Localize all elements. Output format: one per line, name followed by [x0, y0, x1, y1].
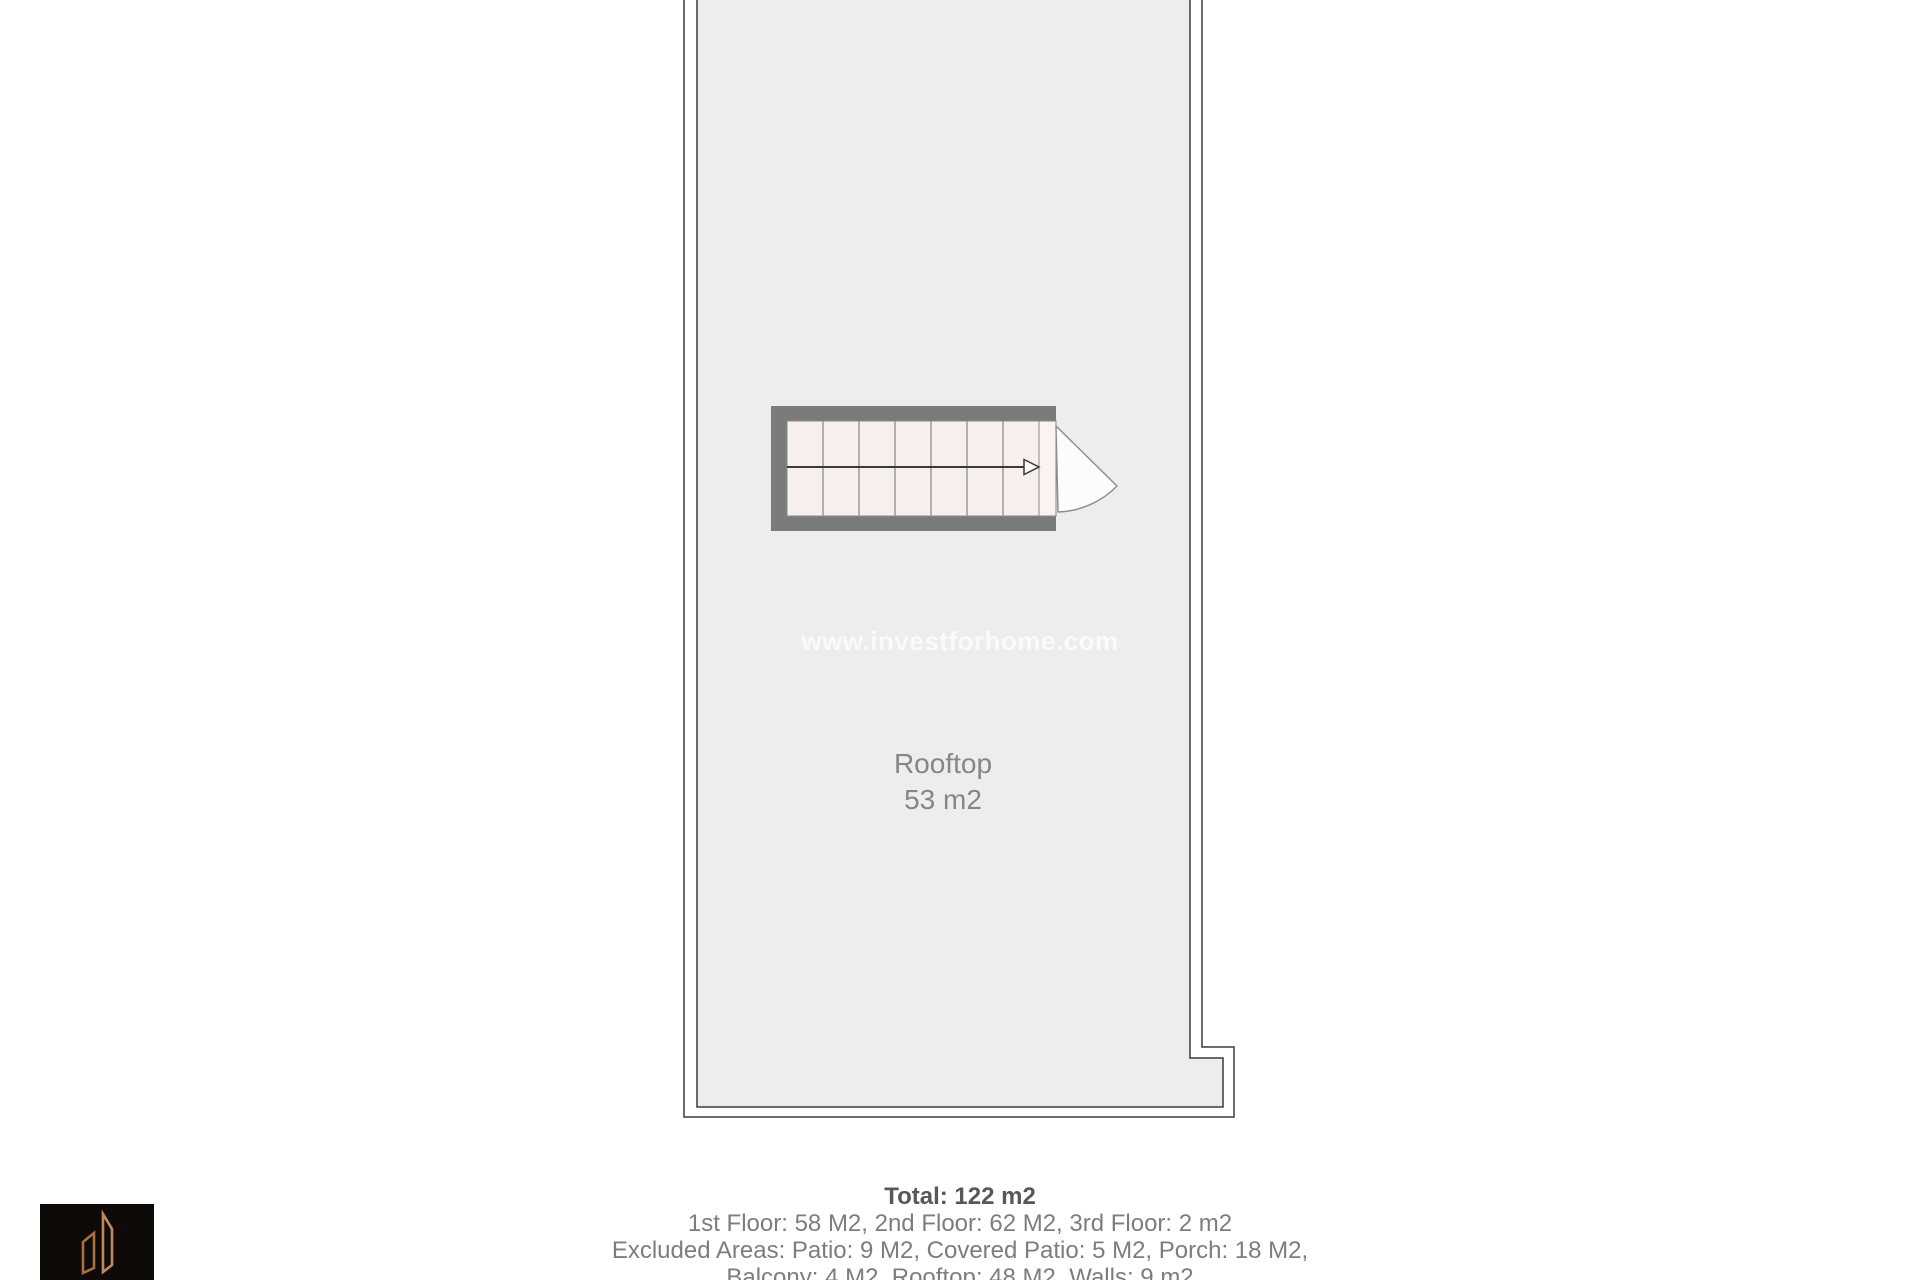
excluded-areas-line-2: Balcony: 4 M2, Rooftop: 48 M2, Walls: 9 …	[0, 1264, 1920, 1280]
area-summary: Total: 122 m2 1st Floor: 58 M2, 2nd Floo…	[0, 1183, 1920, 1280]
excluded-areas-line: Excluded Areas: Patio: 9 M2, Covered Pat…	[0, 1237, 1920, 1264]
floor-area	[697, 0, 1223, 1107]
investforhome-logo	[40, 1204, 154, 1280]
stair-treads	[787, 421, 1039, 516]
stair-landing	[1039, 421, 1056, 516]
floor-areas-line: 1st Floor: 58 M2, 2nd Floor: 62 M2, 3rd …	[0, 1210, 1920, 1237]
floor-plan-page: www.investforhome.com Rooftop 53 m2 Tota…	[0, 0, 1920, 1280]
total-area-label: Total: 122 m2	[0, 1183, 1920, 1210]
floor-plan-drawing	[0, 0, 1920, 1280]
room-name-label: Rooftop	[693, 746, 1193, 782]
room-area-label: 53 m2	[693, 782, 1193, 818]
room-label-block: Rooftop 53 m2	[693, 746, 1193, 818]
buildings-icon	[40, 1204, 154, 1280]
